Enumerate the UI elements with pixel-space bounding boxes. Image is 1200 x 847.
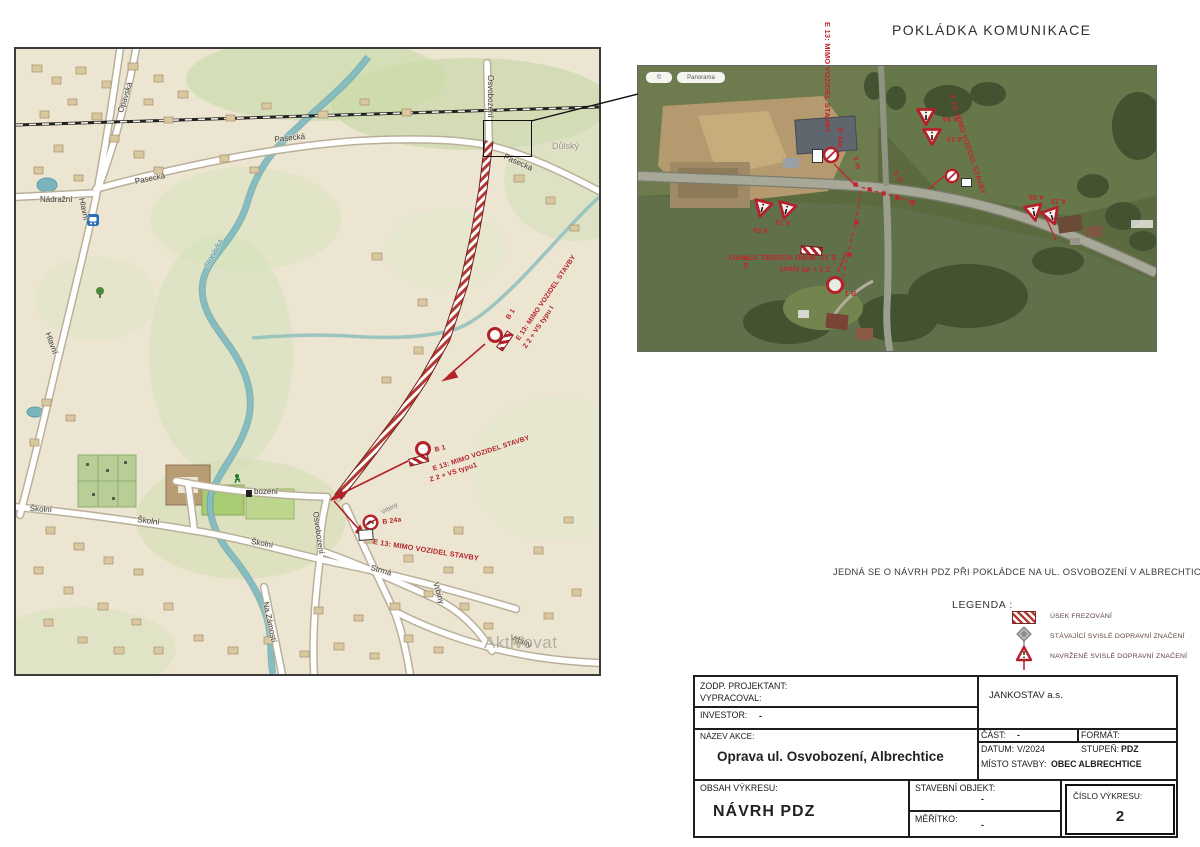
field-label: DATUM: (981, 744, 1014, 754)
map-credit-button[interactable]: © (646, 72, 672, 83)
field-label: FORMÁT: (1081, 730, 1120, 740)
field-value: - (981, 794, 984, 804)
drawing-sheet: Nádražní Opavská Pasecká Pasecká Pasecká… (0, 0, 1200, 847)
field-label: MÍSTO STAVBY: (981, 759, 1047, 769)
aerial-photo: © Panorama (637, 65, 1157, 352)
aerial-base-graphics (638, 66, 1156, 351)
divider (977, 677, 979, 779)
legend-item-label: NAVRŽENÉ SVISLÉ DOPRAVNÍ ZNAČENÍ (1050, 653, 1187, 660)
legend-item-label: STÁVAJÍCÍ SVISLÉ DOPRAVNÍ ZNAČENÍ (1050, 633, 1185, 640)
field-label: ČÁST: (981, 730, 1006, 740)
project-name: Oprava ul. Osvobození, Albrechtice (717, 749, 944, 764)
field-value: OBEC ALBRECHTICE (1051, 759, 1142, 769)
place-label: Důlský (552, 141, 579, 151)
field-label: INVESTOR: (700, 710, 747, 720)
watermark-text: Aktivovat (484, 633, 557, 653)
page-title: POKLÁDKA KOMUNIKACE (892, 22, 1091, 38)
street-label: Školní (30, 504, 53, 514)
divider (908, 779, 910, 838)
field-label: VYPRACOVAL: (700, 693, 761, 703)
field-value: PDZ (1121, 744, 1139, 754)
field-label: STUPEŇ: (1081, 744, 1119, 754)
legend-frezovani-hatch-icon (1012, 611, 1036, 624)
field-label: ZODP. PROJEKTANT: (700, 681, 787, 691)
street-label: Nádražní (40, 195, 72, 204)
field-label: MĚŘÍTKO: (915, 814, 958, 824)
company-name: JANKOSTAV a.s. (989, 690, 1063, 701)
legend-existing-sign-icon (1016, 626, 1032, 648)
detail-callout-box (483, 120, 532, 157)
divider (1077, 728, 1079, 741)
field-value: - (981, 820, 984, 830)
divider (977, 741, 1176, 743)
field-value: V/2024 (1017, 744, 1045, 754)
legend-title: LEGENDA : (952, 599, 1013, 611)
field-label: STAVEBNÍ OBJEKT: (915, 783, 995, 793)
divider (1060, 779, 1062, 838)
watermark-chip (1131, 220, 1153, 228)
drawing-title: NÁVRH PDZ (713, 803, 815, 821)
legend-item-label: ÚSEK FREZOVÁNÍ (1050, 613, 1112, 620)
street-label: Osvobození (486, 75, 495, 118)
divider (908, 810, 1060, 812)
note-text: JEDNÁ SE O NÁVRH PDZ PŘI POKLÁDCE NA UL.… (833, 567, 1200, 577)
title-block: ZODP. PROJEKTANT: VYPRACOVAL: INVESTOR: … (693, 675, 1178, 838)
drawing-number: 2 (1067, 808, 1173, 825)
field-label: ČÍSLO VÝKRESU: (1073, 791, 1142, 801)
field-value: - (1017, 730, 1020, 740)
divider (695, 779, 1176, 781)
field-value: - (759, 711, 762, 721)
field-label: NÁZEV AKCE: (700, 731, 754, 741)
plate-e13-icon (358, 529, 374, 541)
street-label: bození (254, 487, 278, 496)
drawing-number-box: ČÍSLO VÝKRESU: 2 (1065, 784, 1175, 835)
pond (37, 178, 57, 192)
divider (695, 706, 977, 708)
panorama-button[interactable]: Panorama (677, 72, 725, 83)
cemetery (78, 455, 136, 507)
legend-proposed-sign-icon (1016, 646, 1032, 670)
field-label: OBSAH VÝKRESU: (700, 783, 778, 793)
